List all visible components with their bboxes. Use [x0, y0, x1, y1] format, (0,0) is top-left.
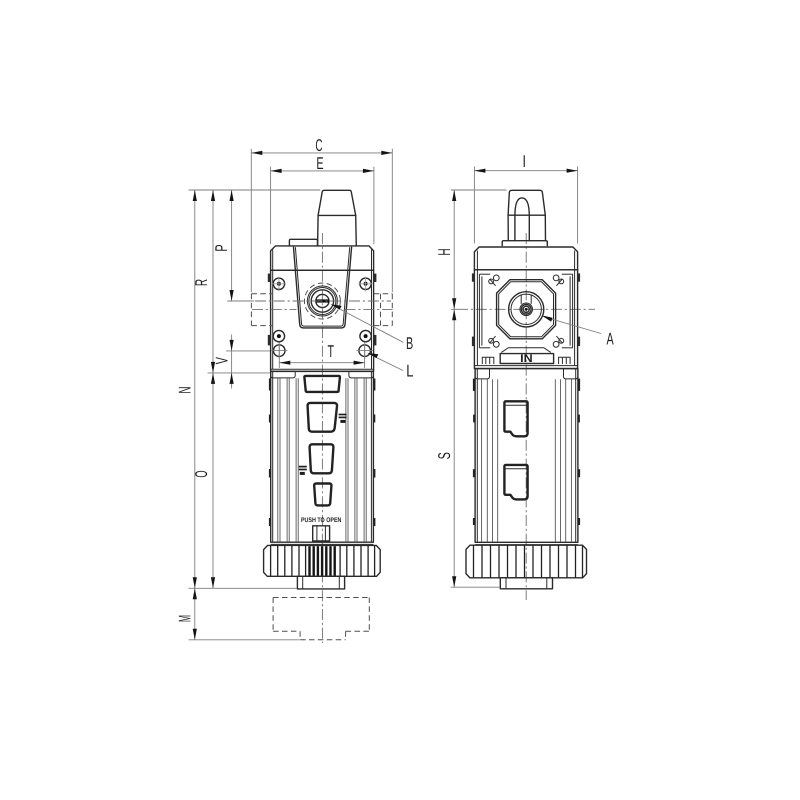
svg-text:A: A: [607, 330, 615, 349]
svg-text:I: I: [523, 152, 527, 171]
svg-text:V: V: [213, 357, 232, 365]
svg-text:B: B: [406, 334, 413, 353]
svg-text:L: L: [406, 361, 413, 380]
svg-text:N: N: [176, 386, 195, 393]
svg-text:R: R: [192, 279, 211, 286]
svg-text:H: H: [435, 248, 454, 255]
svg-text:O: O: [192, 470, 211, 477]
svg-text:P: P: [212, 244, 231, 251]
svg-text:PUSH TO OPEN: PUSH TO OPEN: [301, 517, 342, 524]
svg-text:M: M: [175, 615, 194, 622]
svg-text:C: C: [315, 136, 322, 155]
svg-text:S: S: [435, 452, 454, 459]
svg-text:T: T: [328, 342, 335, 361]
svg-text:IN: IN: [520, 353, 533, 365]
svg-text:E: E: [316, 154, 323, 173]
